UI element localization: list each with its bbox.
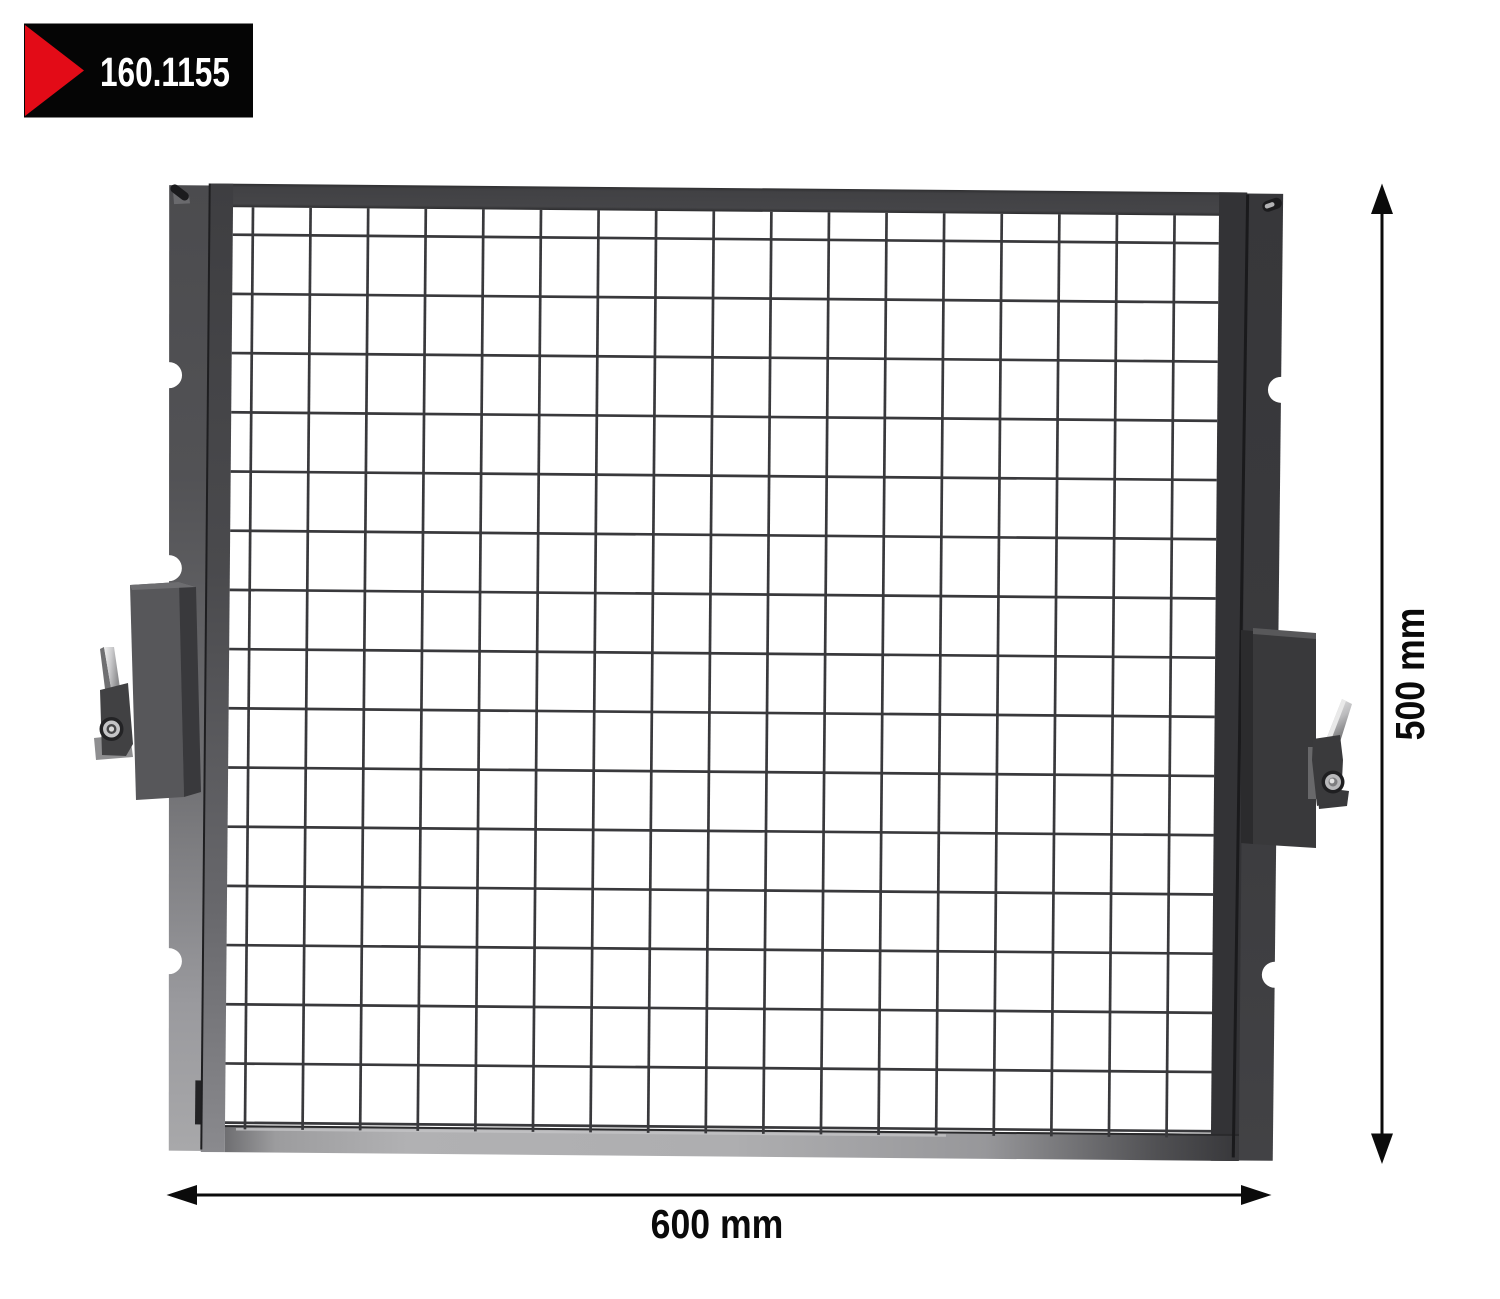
svg-text:500 mm: 500 mm [1388,608,1434,741]
svg-text:600 mm: 600 mm [651,1202,784,1248]
svg-text:160.1155: 160.1155 [100,49,230,95]
